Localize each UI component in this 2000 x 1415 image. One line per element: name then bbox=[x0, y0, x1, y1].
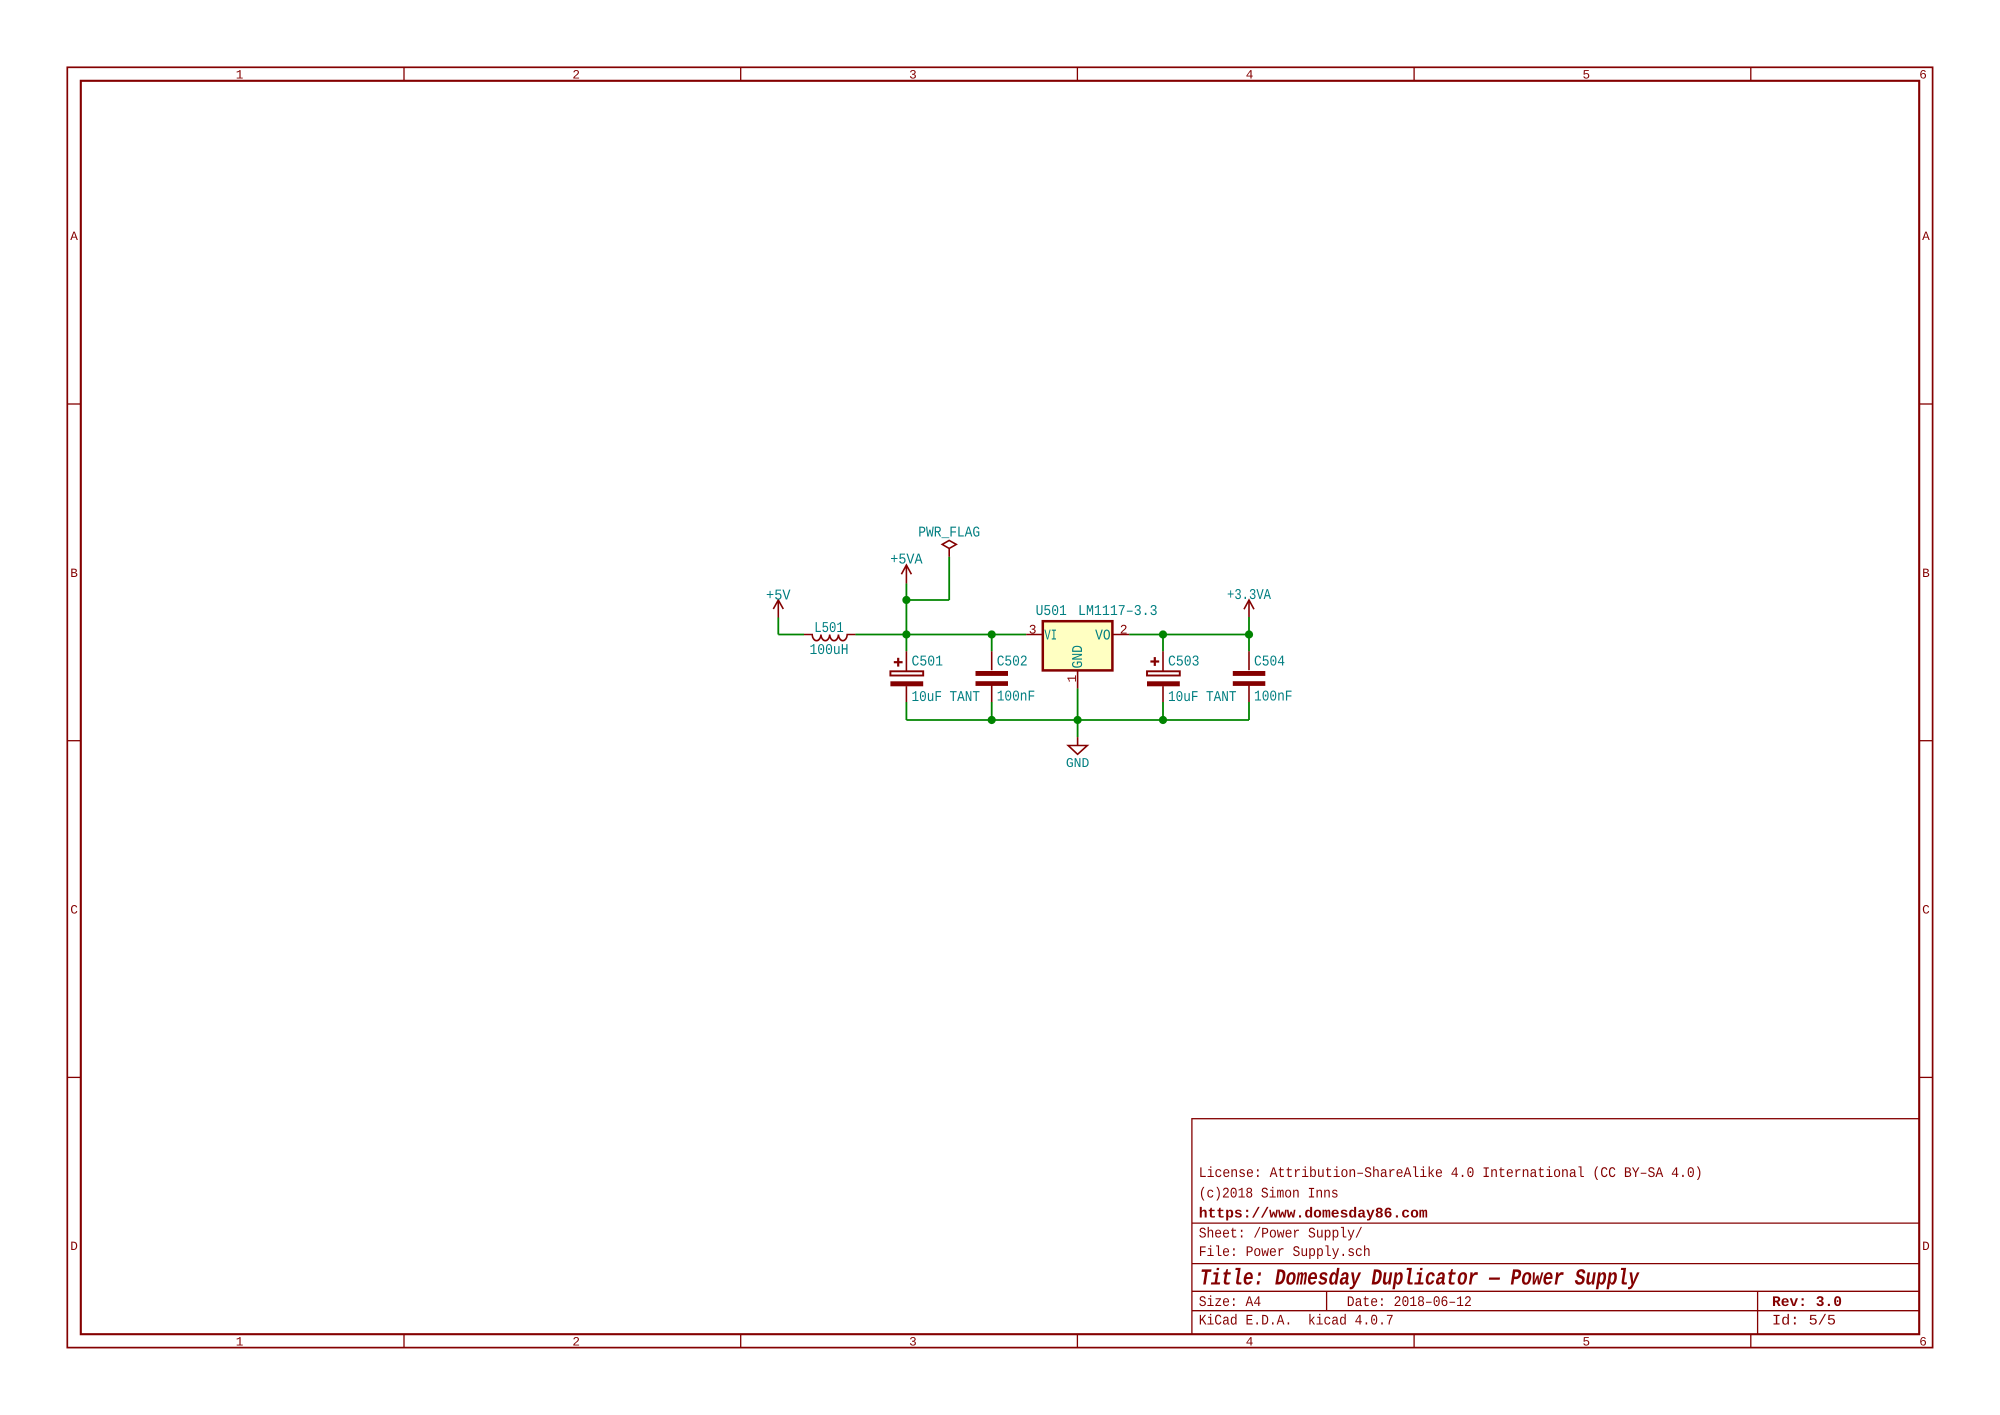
svg-text:10uF TANT: 10uF TANT bbox=[1168, 689, 1237, 706]
svg-text:Id: 5/5: Id: 5/5 bbox=[1772, 1314, 1836, 1330]
svg-text:2: 2 bbox=[572, 1334, 580, 1349]
svg-text:100uH: 100uH bbox=[810, 642, 849, 659]
svg-text:4: 4 bbox=[1246, 68, 1254, 83]
svg-text:D: D bbox=[1922, 1239, 1930, 1254]
svg-text:VI: VI bbox=[1044, 628, 1057, 645]
svg-text:C: C bbox=[1922, 903, 1930, 918]
svg-text:3: 3 bbox=[909, 1334, 917, 1349]
svg-text:2: 2 bbox=[572, 68, 580, 83]
svg-text:GND: GND bbox=[1070, 645, 1087, 669]
svg-text:(c)2018 Simon Inns: (c)2018 Simon Inns bbox=[1199, 1186, 1339, 1202]
svg-text:https://www.domesday86.com: https://www.domesday86.com bbox=[1199, 1207, 1428, 1223]
svg-text:L501: L501 bbox=[814, 620, 844, 637]
svg-text:+3.3VA: +3.3VA bbox=[1227, 587, 1271, 604]
svg-text:A: A bbox=[70, 229, 78, 244]
svg-text:PWR_FLAG: PWR_FLAG bbox=[918, 525, 980, 542]
svg-text:100nF: 100nF bbox=[1254, 689, 1293, 706]
svg-text:100nF: 100nF bbox=[997, 689, 1035, 706]
svg-text:File: Power Supply.sch: File: Power Supply.sch bbox=[1199, 1245, 1371, 1261]
svg-text:C502: C502 bbox=[997, 654, 1028, 671]
svg-text:Title: Domesday Duplicator — P: Title: Domesday Duplicator — Power Suppl… bbox=[1200, 1265, 1640, 1291]
svg-text:6: 6 bbox=[1919, 68, 1927, 83]
svg-text:1: 1 bbox=[236, 1334, 244, 1349]
svg-text:C: C bbox=[70, 903, 78, 918]
svg-text:Date: 2018–06–12: Date: 2018–06–12 bbox=[1347, 1295, 1472, 1311]
svg-text:U501: U501 bbox=[1036, 603, 1067, 620]
svg-text:10uF TANT: 10uF TANT bbox=[912, 689, 981, 706]
svg-text:Rev: 3.0: Rev: 3.0 bbox=[1772, 1295, 1842, 1311]
svg-text:LM1117–3.3: LM1117–3.3 bbox=[1078, 603, 1158, 620]
svg-text:KiCad E.D.A. kicad 4.0.7: KiCad E.D.A. kicad 4.0.7 bbox=[1199, 1314, 1394, 1330]
svg-text:Sheet: /Power Supply/: Sheet: /Power Supply/ bbox=[1199, 1227, 1363, 1243]
svg-text:2: 2 bbox=[1120, 622, 1128, 637]
svg-text:+5V: +5V bbox=[766, 588, 791, 605]
svg-text:5: 5 bbox=[1583, 1334, 1591, 1349]
svg-text:6: 6 bbox=[1919, 1334, 1927, 1349]
svg-text:VO: VO bbox=[1095, 628, 1111, 645]
svg-text:1: 1 bbox=[1065, 675, 1080, 683]
svg-text:B: B bbox=[70, 566, 78, 581]
svg-text:D: D bbox=[70, 1239, 78, 1254]
svg-text:C501: C501 bbox=[912, 654, 944, 671]
svg-text:A: A bbox=[1922, 229, 1930, 244]
svg-text:4: 4 bbox=[1246, 1334, 1254, 1349]
svg-text:3: 3 bbox=[909, 68, 917, 83]
svg-text:C503: C503 bbox=[1168, 654, 1200, 671]
svg-text:GND: GND bbox=[1066, 757, 1090, 772]
svg-text:C504: C504 bbox=[1254, 654, 1285, 671]
svg-text:5: 5 bbox=[1583, 68, 1591, 83]
svg-text:+5VA: +5VA bbox=[890, 552, 922, 569]
svg-text:License: Attribution–ShareAlik: License: Attribution–ShareAlike 4.0 Inte… bbox=[1199, 1166, 1703, 1182]
svg-text:B: B bbox=[1922, 566, 1930, 581]
svg-text:1: 1 bbox=[236, 68, 244, 83]
svg-text:3: 3 bbox=[1029, 622, 1037, 637]
svg-text:Size: A4: Size: A4 bbox=[1199, 1295, 1262, 1311]
